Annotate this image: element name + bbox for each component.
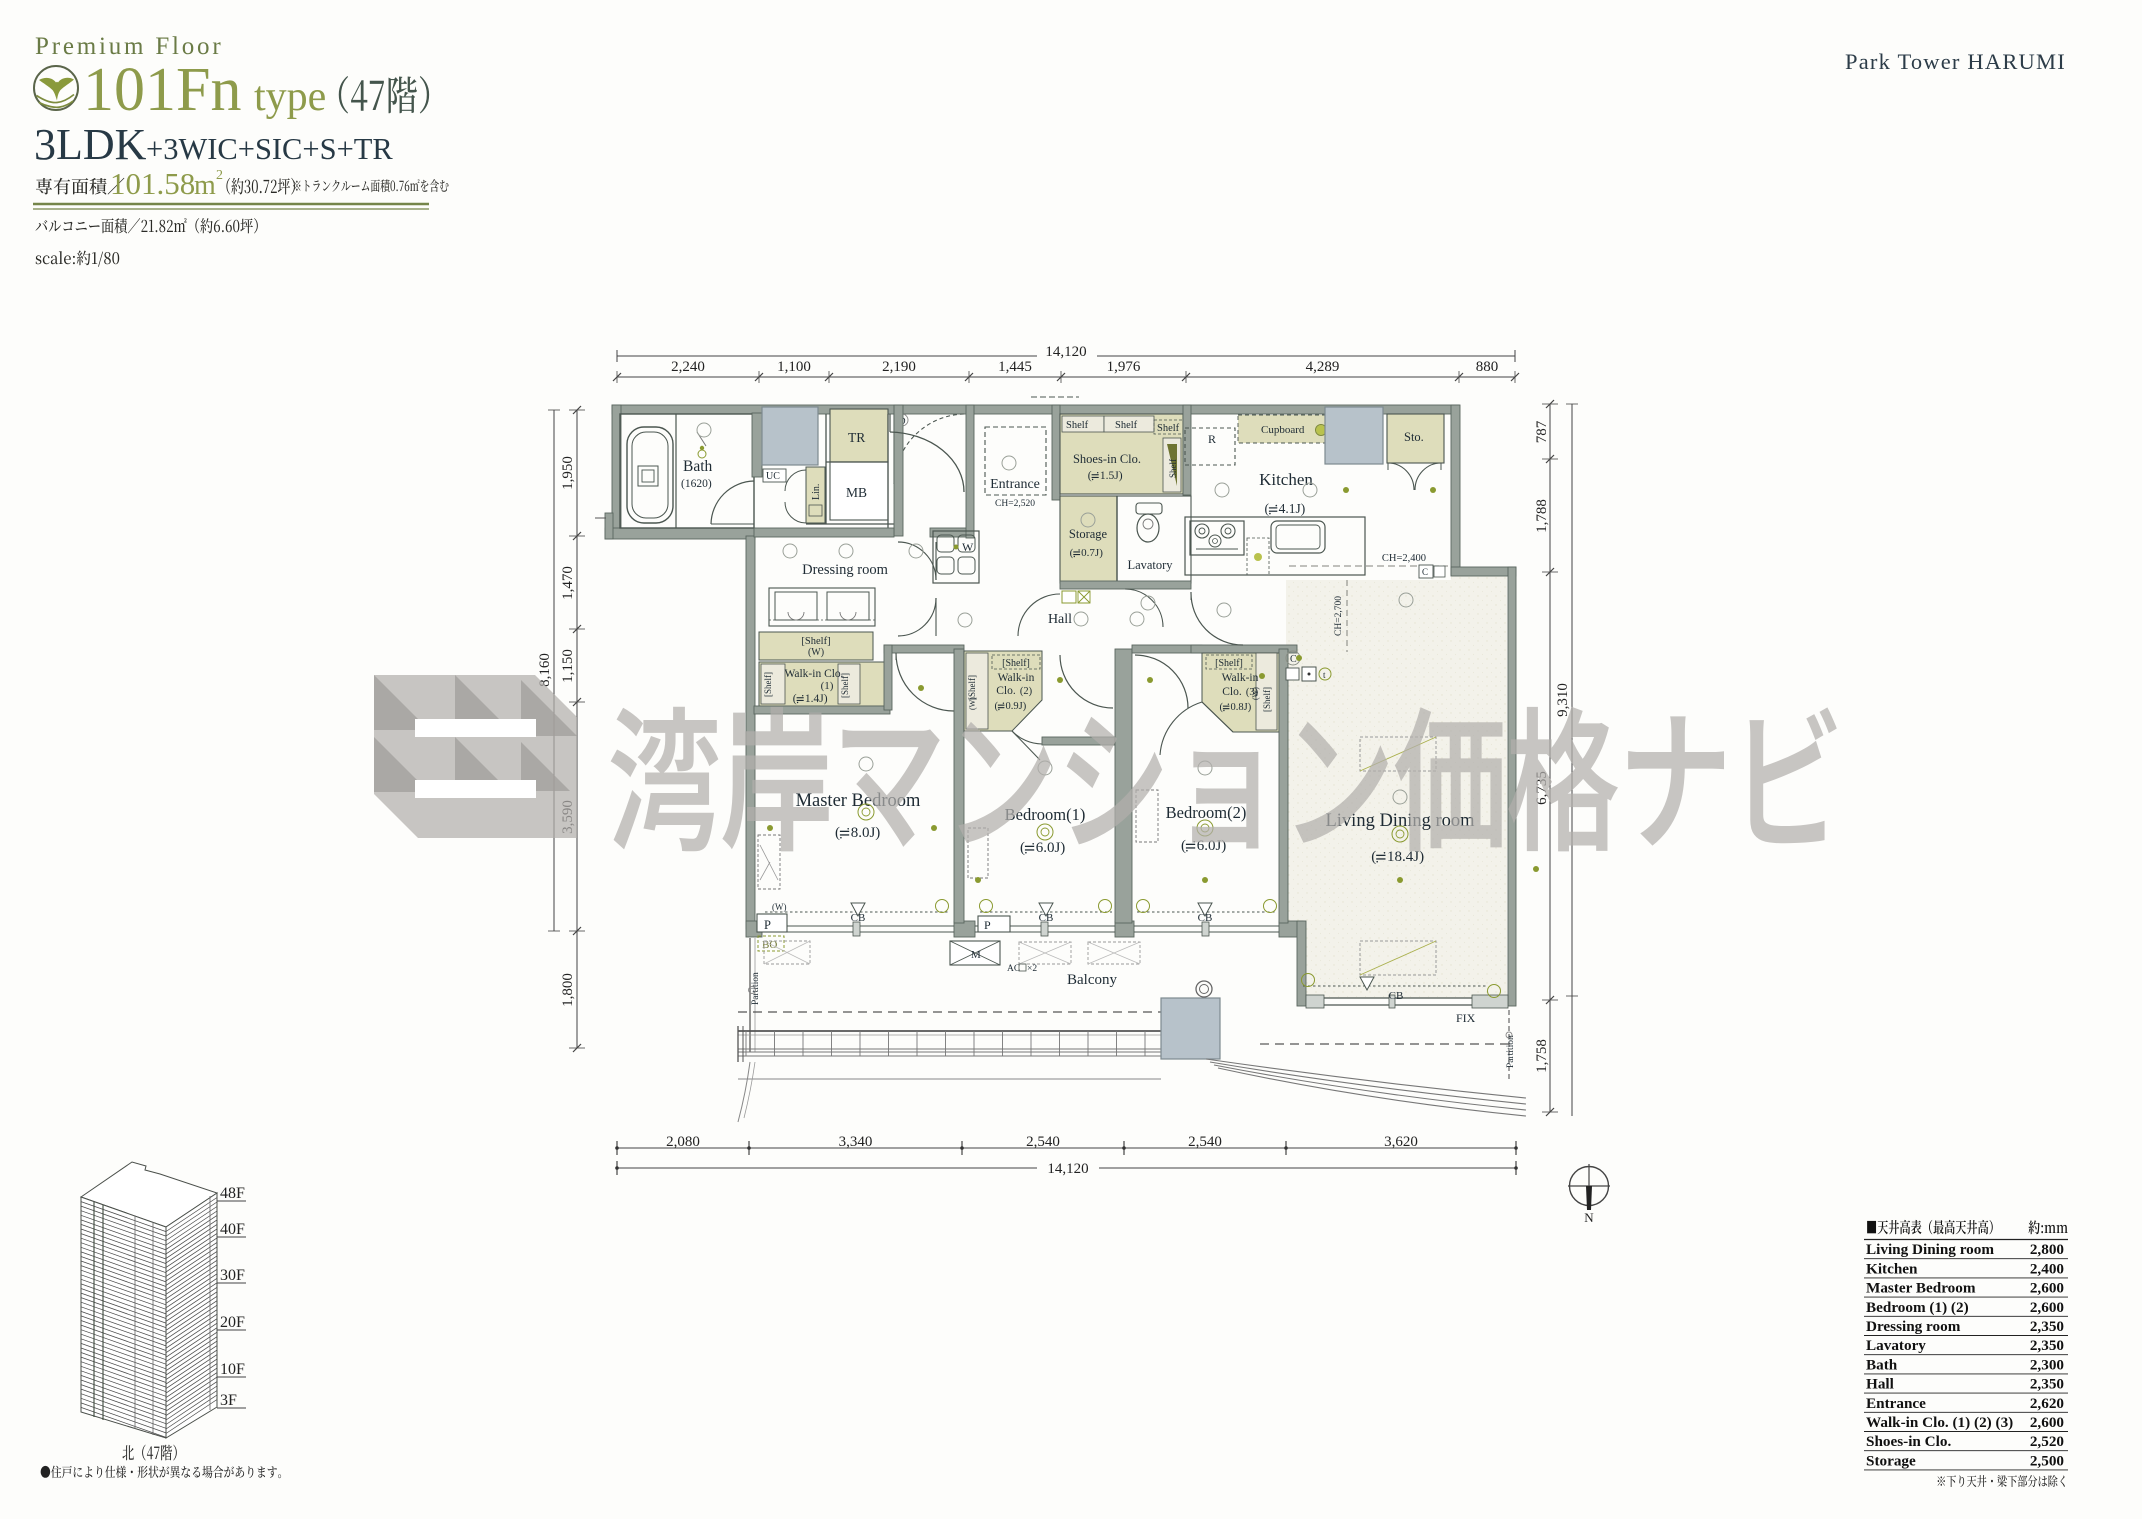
svg-text:Bath: Bath (1866, 1356, 1898, 1373)
svg-text:2,620: 2,620 (2030, 1395, 2065, 1412)
svg-text:1,800: 1,800 (560, 973, 576, 1007)
svg-text:(: ( (994, 701, 998, 712)
svg-text:2,540: 2,540 (1026, 1134, 1060, 1150)
svg-text:Shelf: Shelf (1157, 423, 1180, 434)
svg-text:(: ( (835, 825, 840, 841)
svg-text:Kitchen: Kitchen (1866, 1260, 1918, 1277)
svg-text:Lin.: Lin. (811, 484, 822, 500)
svg-text:CB: CB (851, 912, 866, 924)
svg-text:1.4J): 1.4J) (805, 693, 828, 705)
svg-text:Clo.: Clo. (996, 685, 1016, 697)
svg-text:1,470: 1,470 (560, 566, 576, 600)
svg-text:Walk-in: Walk-in (998, 672, 1035, 684)
svg-text:1,100: 1,100 (777, 359, 811, 375)
svg-text:Lavatory: Lavatory (1127, 558, 1173, 572)
svg-text:Master Bedroom: Master Bedroom (1866, 1280, 1976, 1297)
svg-text:3F: 3F (220, 1392, 237, 1409)
svg-text:1,445: 1,445 (998, 359, 1032, 375)
svg-text:[Shelf]: [Shelf] (763, 672, 773, 697)
svg-text:Partition: Partition (1506, 1035, 1516, 1068)
svg-text:14,120: 14,120 (1047, 1161, 1088, 1177)
svg-text:2,800: 2,800 (2030, 1241, 2065, 1258)
svg-text:(: ( (1219, 702, 1223, 713)
svg-text:type: type (254, 74, 326, 120)
svg-text:(: ( (1070, 547, 1074, 559)
svg-text:Bath: Bath (683, 458, 713, 475)
svg-text:C: C (1290, 654, 1297, 665)
svg-text:P: P (984, 918, 991, 932)
svg-text:1,758: 1,758 (1534, 1039, 1550, 1073)
svg-text:C: C (1422, 567, 1428, 577)
svg-text:(W): (W) (772, 902, 787, 912)
svg-text:(: ( (1371, 849, 1376, 865)
svg-text:(1): (1) (821, 680, 834, 692)
svg-text:Clo.: Clo. (1222, 686, 1242, 698)
svg-text:1,950: 1,950 (560, 456, 576, 490)
svg-text:2,520: 2,520 (2030, 1433, 2065, 1450)
svg-text:(1620): (1620) (681, 478, 712, 490)
svg-text:Walk-in: Walk-in (1222, 672, 1259, 684)
svg-text:FIX: FIX (1456, 1011, 1476, 1025)
svg-text:101.58: 101.58 (110, 166, 195, 201)
svg-text:×2: ×2 (1027, 964, 1037, 974)
svg-text:(W): (W) (968, 697, 977, 710)
svg-text:Storage: Storage (1866, 1452, 1916, 1469)
svg-text:3LDK: 3LDK (34, 120, 147, 169)
svg-text:Walk-in Clo.: Walk-in Clo. (784, 668, 843, 680)
svg-text:2: 2 (216, 168, 223, 183)
svg-text:UC: UC (766, 471, 780, 482)
svg-text:(2): (2) (1020, 686, 1033, 697)
svg-text:14,120: 14,120 (1045, 344, 1086, 360)
svg-text:AC: AC (1007, 964, 1020, 974)
svg-text:(: ( (1088, 470, 1092, 482)
svg-text:Dressing room: Dressing room (802, 562, 889, 578)
svg-text:[Shelf]: [Shelf] (1215, 658, 1243, 669)
svg-text:[Shelf]: [Shelf] (967, 675, 977, 700)
svg-text:2,540: 2,540 (1188, 1134, 1222, 1150)
svg-text:Kitchen: Kitchen (1259, 470, 1313, 489)
svg-text:Hall: Hall (1866, 1376, 1894, 1393)
svg-text:Park Tower HARUMI: Park Tower HARUMI (1845, 49, 2066, 74)
svg-text:[Shelf]: [Shelf] (1262, 687, 1272, 712)
svg-text:2,500: 2,500 (2030, 1452, 2065, 1469)
svg-text:CB: CB (1198, 912, 1213, 924)
svg-text:TR: TR (848, 430, 865, 445)
svg-text:880: 880 (1476, 359, 1499, 375)
svg-text:[Shelf]: [Shelf] (1002, 658, 1030, 669)
svg-text:1.5J): 1.5J) (1100, 470, 1123, 482)
svg-text:(: ( (1264, 501, 1269, 516)
svg-text:Sto.: Sto. (1404, 430, 1424, 444)
svg-text:Shelf: Shelf (1168, 459, 1178, 478)
svg-text:3,340: 3,340 (839, 1134, 873, 1150)
svg-text:Entrance: Entrance (1866, 1395, 1926, 1412)
svg-text:2,600: 2,600 (2030, 1299, 2065, 1316)
svg-text:3,620: 3,620 (1384, 1134, 1418, 1150)
svg-text:6.0J): 6.0J) (1036, 840, 1066, 856)
svg-text:0.7J): 0.7J) (1081, 547, 1103, 559)
svg-text:0.9J): 0.9J) (1005, 701, 1026, 712)
svg-text:P: P (764, 918, 771, 932)
svg-text:Cupboard: Cupboard (1261, 424, 1305, 436)
svg-text:Hall: Hall (1048, 612, 1072, 627)
svg-text:2,350: 2,350 (2030, 1318, 2065, 1335)
svg-text:m: m (194, 170, 216, 201)
svg-text:Shoes-in Clo.: Shoes-in Clo. (1073, 452, 1141, 466)
svg-text:2,240: 2,240 (671, 359, 705, 375)
svg-text:N: N (1584, 1210, 1594, 1225)
svg-text:2,300: 2,300 (2030, 1356, 2065, 1373)
svg-text:2,600: 2,600 (2030, 1280, 2065, 1297)
svg-text:Dressing room: Dressing room (1866, 1318, 1961, 1335)
svg-text:1,788: 1,788 (1534, 499, 1550, 533)
svg-text:10F: 10F (220, 1361, 245, 1378)
svg-text:4,289: 4,289 (1306, 359, 1340, 375)
svg-text:MB: MB (846, 485, 867, 500)
svg-text:(: ( (793, 693, 797, 705)
svg-text:9,310: 9,310 (1555, 683, 1571, 717)
svg-text:1,150: 1,150 (560, 649, 576, 683)
svg-text:2,350: 2,350 (2030, 1337, 2065, 1354)
svg-text:30F: 30F (220, 1267, 245, 1284)
svg-text:Bedroom(2): Bedroom(2) (1166, 803, 1247, 822)
svg-text:787: 787 (1534, 420, 1550, 443)
svg-text:CH=2,520: CH=2,520 (995, 499, 1035, 509)
svg-text:2,190: 2,190 (882, 359, 916, 375)
svg-text:2,350: 2,350 (2030, 1376, 2065, 1393)
svg-text:101Fn: 101Fn (83, 56, 241, 124)
svg-text:2,400: 2,400 (2030, 1260, 2065, 1277)
svg-text:18.4J): 18.4J) (1387, 849, 1424, 865)
svg-text:48F: 48F (220, 1185, 245, 1202)
svg-text:[Shelf]: [Shelf] (801, 636, 830, 647)
svg-text:M: M (971, 949, 981, 961)
svg-text:Shoes-in Clo.: Shoes-in Clo. (1866, 1433, 1951, 1450)
svg-text:(: ( (1020, 840, 1025, 856)
svg-text:Shelf: Shelf (1066, 420, 1089, 431)
svg-text:(W): (W) (808, 647, 824, 658)
svg-text:CB: CB (1389, 990, 1404, 1002)
svg-text:Entrance: Entrance (990, 477, 1040, 492)
svg-text:Lavatory: Lavatory (1866, 1337, 1926, 1354)
svg-text:(3): (3) (1246, 687, 1259, 698)
svg-text:W: W (962, 540, 974, 554)
svg-text:(: ( (1181, 838, 1186, 854)
svg-text:1,976: 1,976 (1107, 359, 1141, 375)
svg-text:R: R (1208, 432, 1216, 446)
svg-text:CB: CB (1039, 912, 1054, 924)
svg-text:0.8J): 0.8J) (1230, 702, 1251, 713)
svg-text:+3WIC+SIC+S+TR: +3WIC+SIC+S+TR (146, 132, 393, 166)
svg-text:Storage: Storage (1069, 527, 1108, 541)
svg-text:40F: 40F (220, 1221, 245, 1238)
svg-text:Living Dining room: Living Dining room (1866, 1241, 1994, 1258)
svg-text:Balcony: Balcony (1067, 972, 1117, 988)
svg-text:Bedroom (1) (2): Bedroom (1) (2) (1866, 1299, 1969, 1316)
svg-text:Shelf: Shelf (1115, 420, 1138, 431)
svg-text:Walk-in Clo. (1) (2) (3): Walk-in Clo. (1) (2) (3) (1866, 1414, 2013, 1431)
svg-text:20F: 20F (220, 1314, 245, 1331)
svg-text:Partition: Partition (751, 972, 761, 1005)
svg-text:CH=2,400: CH=2,400 (1382, 553, 1426, 564)
svg-text:2,080: 2,080 (666, 1134, 700, 1150)
svg-text:8.0J): 8.0J) (851, 825, 881, 841)
svg-text:2,600: 2,600 (2030, 1414, 2065, 1431)
svg-text:CH=2,700: CH=2,700 (1334, 596, 1344, 636)
svg-text:4.1J): 4.1J) (1279, 501, 1306, 516)
